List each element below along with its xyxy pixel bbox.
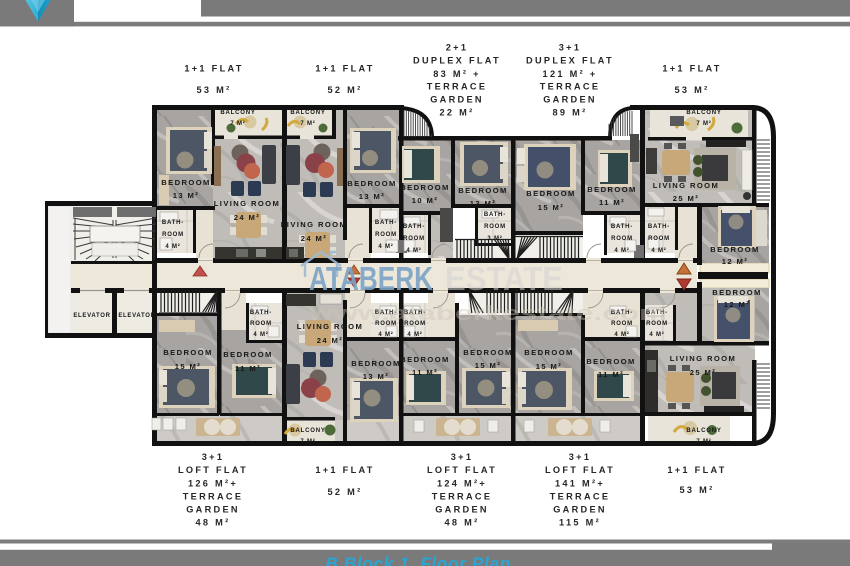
svg-text:7 M²: 7 M² (696, 438, 711, 445)
svg-text:ROOM: ROOM (250, 321, 272, 327)
svg-text:11 M²: 11 M² (235, 364, 261, 373)
svg-text:ROOM: ROOM (611, 236, 633, 242)
svg-text:1+1 FLAT: 1+1 FLAT (315, 64, 374, 74)
svg-text:52 M²: 52 M² (328, 85, 363, 95)
svg-text:ROOM: ROOM (484, 224, 506, 230)
svg-text:BATH-: BATH- (648, 224, 670, 230)
svg-text:TERRACE: TERRACE (427, 82, 488, 92)
svg-text:4 M²: 4 M² (165, 243, 180, 250)
svg-text:DUPLEX FLAT: DUPLEX FLAT (526, 56, 614, 66)
svg-text:53 M²: 53 M² (197, 85, 232, 95)
svg-text:BEDROOM: BEDROOM (163, 348, 212, 357)
svg-text:2+1: 2+1 (446, 43, 469, 53)
svg-text:4 M²: 4 M² (649, 331, 664, 338)
svg-text:4 M²: 4 M² (378, 243, 393, 250)
svg-text:GARDEN: GARDEN (430, 95, 484, 105)
svg-text:4 M²: 4 M² (378, 331, 393, 338)
svg-text:52 M²: 52 M² (328, 487, 363, 497)
svg-text:TERRACE: TERRACE (550, 492, 611, 502)
svg-text:48 M²: 48 M² (196, 518, 231, 528)
svg-text:BEDROOM: BEDROOM (586, 357, 635, 366)
svg-text:4 M²: 4 M² (614, 331, 629, 338)
svg-text:BALCONY: BALCONY (290, 110, 325, 116)
svg-text:BEDROOM: BEDROOM (458, 186, 507, 195)
svg-text:ESTATE: ESTATE (445, 260, 563, 297)
svg-text:LIVING ROOM: LIVING ROOM (281, 220, 347, 229)
svg-text:4 M²: 4 M² (614, 247, 629, 254)
svg-text:B Block 1. Floor Plan: B Block 1. Floor Plan (325, 554, 511, 566)
svg-text:GARDEN: GARDEN (186, 505, 240, 515)
svg-text:4 M²: 4 M² (407, 331, 422, 338)
svg-text:BALCONY: BALCONY (686, 428, 721, 434)
svg-text:LIVING ROOM: LIVING ROOM (653, 181, 719, 190)
svg-text:3 M²: 3 M² (487, 235, 502, 242)
svg-text:BEDROOM: BEDROOM (347, 179, 396, 188)
svg-text:121 M² +: 121 M² + (543, 69, 598, 79)
svg-text:13 M²: 13 M² (359, 192, 385, 201)
svg-text:ELEVATOR: ELEVATOR (73, 313, 110, 319)
svg-text:LOFT FLAT: LOFT FLAT (178, 465, 248, 475)
svg-text:13 M²: 13 M² (470, 199, 496, 208)
svg-text:24 M²: 24 M² (317, 336, 343, 345)
svg-text:15 M²: 15 M² (175, 362, 201, 371)
svg-text:BEDROOM: BEDROOM (161, 178, 210, 187)
svg-text:53 M²: 53 M² (675, 85, 710, 95)
svg-text:BATH-: BATH- (250, 310, 272, 316)
svg-text:LOFT FLAT: LOFT FLAT (427, 465, 497, 475)
svg-text:BATH-: BATH- (162, 220, 184, 226)
svg-text:DUPLEX FLAT: DUPLEX FLAT (413, 56, 501, 66)
svg-text:ROOM: ROOM (648, 236, 670, 242)
svg-text:115 M²: 115 M² (559, 518, 601, 528)
svg-text:1+1 FLAT: 1+1 FLAT (315, 465, 374, 475)
svg-text:4 M²: 4 M² (253, 331, 268, 338)
svg-text:BALCONY: BALCONY (290, 428, 325, 434)
svg-text:24 M²: 24 M² (301, 234, 327, 243)
svg-text:TERRACE: TERRACE (432, 492, 493, 502)
svg-text:48 M²: 48 M² (445, 518, 480, 528)
svg-text:22 M²: 22 M² (440, 108, 475, 118)
svg-text:ROOM: ROOM (375, 232, 397, 238)
svg-text:3+1: 3+1 (451, 452, 474, 462)
svg-text:BEDROOM: BEDROOM (463, 348, 512, 357)
svg-text:TERRACE: TERRACE (183, 492, 244, 502)
svg-text:10 M²: 10 M² (412, 196, 438, 205)
svg-text:1+1 FLAT: 1+1 FLAT (184, 64, 243, 74)
svg-text:BALCONY: BALCONY (220, 110, 255, 116)
svg-text:BEDROOM: BEDROOM (526, 189, 575, 198)
svg-text:124 M²+: 124 M²+ (437, 479, 487, 489)
svg-text:ROOM: ROOM (403, 236, 425, 242)
svg-text:15 M²: 15 M² (475, 361, 501, 370)
svg-text:13 M²: 13 M² (363, 372, 389, 381)
svg-text:12 M²: 12 M² (724, 300, 750, 309)
svg-text:TERRACE: TERRACE (540, 82, 601, 92)
svg-text:7 M²: 7 M² (696, 120, 711, 127)
svg-text:BEDROOM: BEDROOM (524, 348, 573, 357)
svg-text:7 M²: 7 M² (300, 438, 315, 445)
svg-text:3+1: 3+1 (569, 452, 592, 462)
svg-text:15 M²: 15 M² (536, 362, 562, 371)
svg-text:BATH-: BATH- (403, 224, 425, 230)
svg-text:83 M² +: 83 M² + (433, 69, 481, 79)
svg-text:25 M²: 25 M² (673, 194, 699, 203)
svg-text:15 M²: 15 M² (538, 203, 564, 212)
svg-text:4 M²: 4 M² (651, 247, 666, 254)
svg-text:BEDROOM: BEDROOM (400, 183, 449, 192)
svg-text:ELEVATOR: ELEVATOR (118, 313, 155, 319)
svg-text:www.ataberkestate.com: www.ataberkestate.com (307, 303, 667, 325)
svg-text:11 M²: 11 M² (598, 370, 624, 379)
svg-text:13 M²: 13 M² (173, 191, 199, 200)
svg-text:4 M²: 4 M² (406, 247, 421, 254)
svg-text:3+1: 3+1 (202, 452, 225, 462)
svg-text:BATH-: BATH- (484, 212, 506, 218)
svg-text:BEDROOM: BEDROOM (712, 288, 761, 297)
svg-text:LIVING ROOM: LIVING ROOM (214, 199, 280, 208)
svg-text:24 M²: 24 M² (234, 213, 260, 222)
svg-text:89 M²: 89 M² (553, 108, 588, 118)
svg-text:GARDEN: GARDEN (543, 95, 597, 105)
svg-text:7 M²: 7 M² (300, 120, 315, 127)
svg-text:BATH-: BATH- (611, 224, 633, 230)
svg-text:BEDROOM: BEDROOM (710, 245, 759, 254)
svg-text:LOFT FLAT: LOFT FLAT (545, 465, 615, 475)
svg-text:11 M²: 11 M² (599, 198, 625, 207)
svg-text:LIVING ROOM: LIVING ROOM (670, 354, 736, 363)
svg-text:53 M²: 53 M² (680, 485, 715, 495)
svg-text:25 M²: 25 M² (690, 368, 716, 377)
svg-text:GARDEN: GARDEN (435, 505, 489, 515)
svg-text:BATH-: BATH- (375, 220, 397, 226)
svg-text:BEDROOM: BEDROOM (351, 359, 400, 368)
svg-text:ATABERK: ATABERK (309, 260, 433, 297)
svg-text:12 M²: 12 M² (722, 257, 748, 266)
svg-text:1+1 FLAT: 1+1 FLAT (667, 465, 726, 475)
svg-text:3+1: 3+1 (559, 43, 582, 53)
svg-text:BEDROOM: BEDROOM (587, 185, 636, 194)
svg-text:ROOM: ROOM (162, 232, 184, 238)
svg-text:7 M²: 7 M² (230, 120, 245, 127)
svg-text:141 M²+: 141 M²+ (555, 479, 605, 489)
svg-text:GARDEN: GARDEN (553, 505, 607, 515)
svg-text:11 M²: 11 M² (412, 368, 438, 377)
svg-text:126 M²+: 126 M²+ (188, 479, 238, 489)
svg-text:BALCONY: BALCONY (686, 110, 721, 116)
svg-text:BEDROOM: BEDROOM (223, 350, 272, 359)
svg-text:1+1 FLAT: 1+1 FLAT (662, 64, 721, 74)
svg-text:BEDROOM: BEDROOM (400, 355, 449, 364)
